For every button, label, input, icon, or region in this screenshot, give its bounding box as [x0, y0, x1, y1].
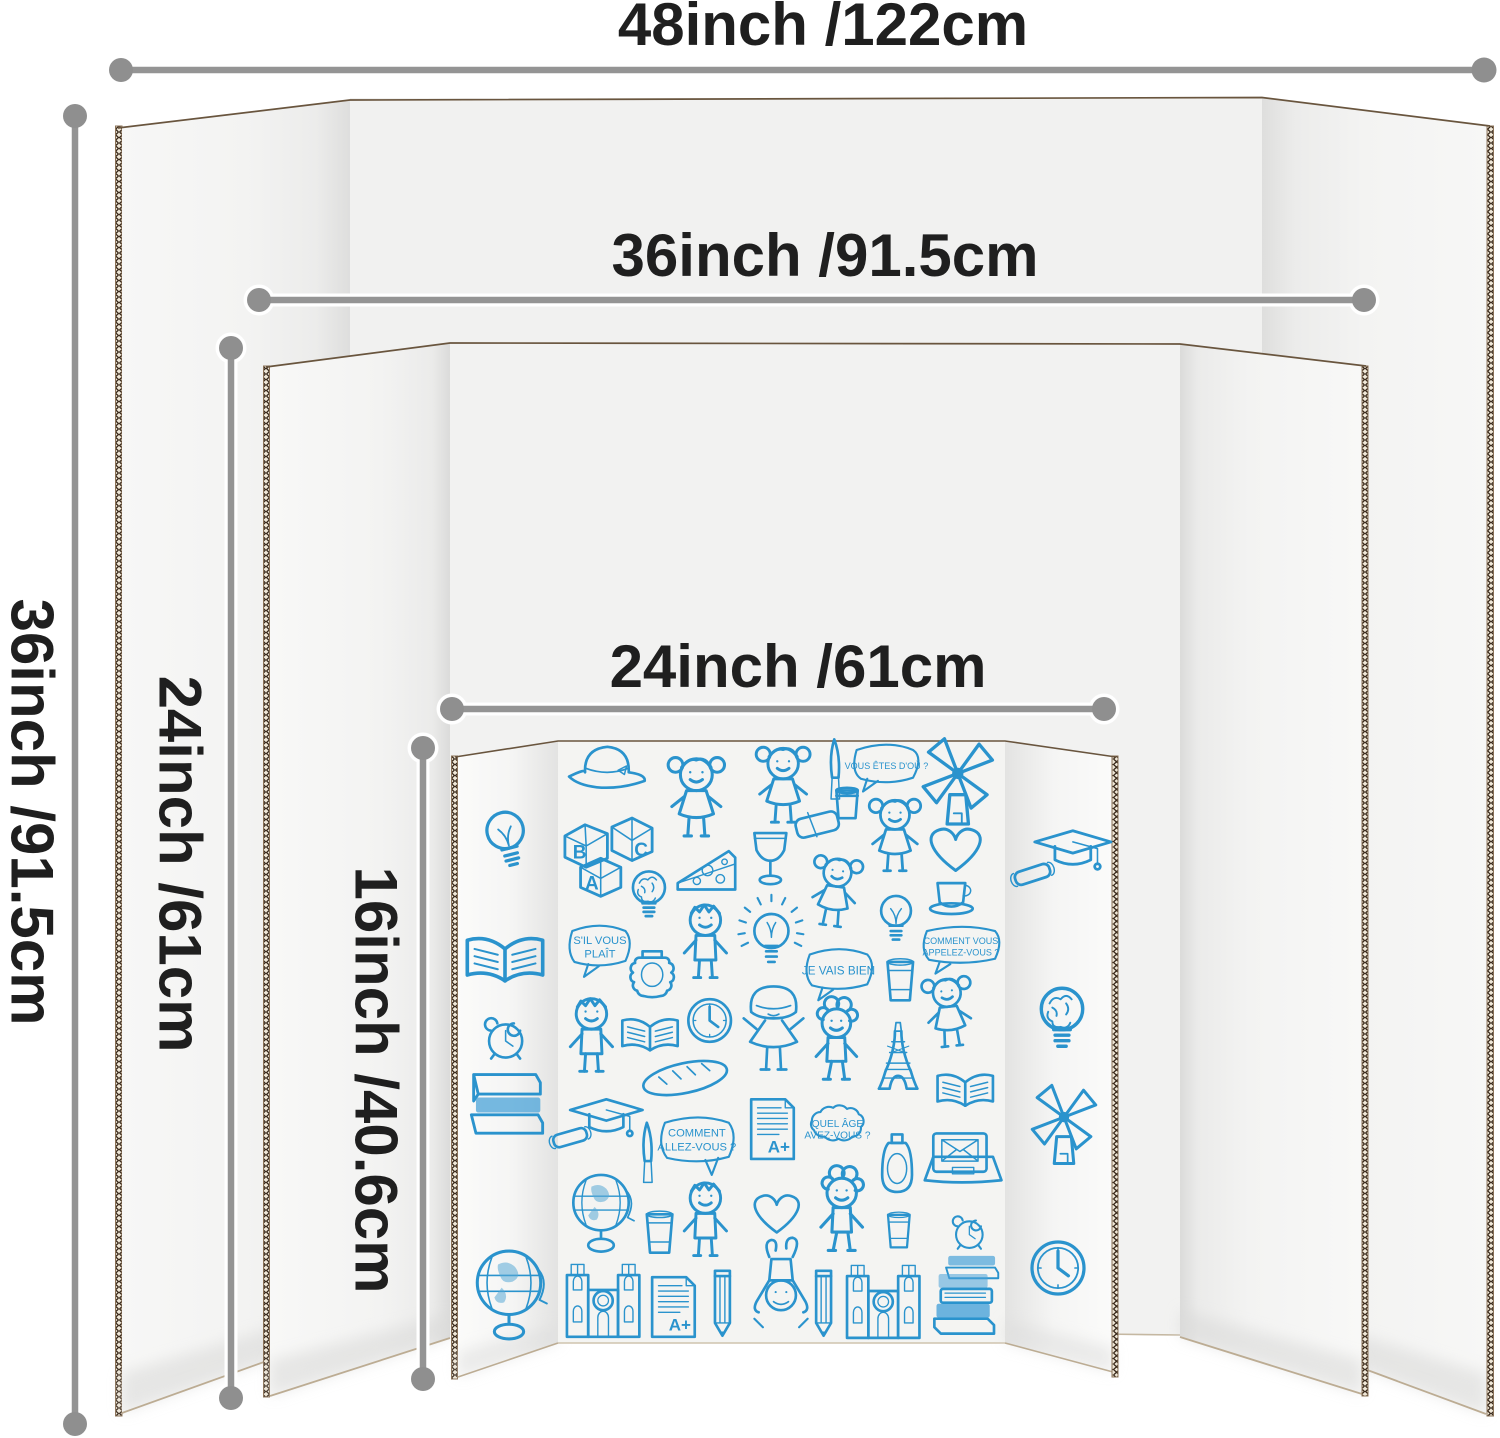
svg-text:COMMENT VOUS: COMMENT VOUS: [924, 936, 999, 946]
svg-text:COMMENT: COMMENT: [668, 1128, 726, 1140]
svg-text:36inch /91.5cm: 36inch /91.5cm: [0, 599, 66, 1026]
svg-text:AVEZ-VOUS ?: AVEZ-VOUS ?: [804, 1131, 870, 1142]
svg-text:QUEL ÂGE: QUEL ÂGE: [812, 1117, 864, 1130]
svg-text:48inch /122cm: 48inch /122cm: [618, 0, 1028, 58]
svg-text:JE VAIS BIEN: JE VAIS BIEN: [802, 965, 875, 978]
svg-text:16inch /40.6cm: 16inch /40.6cm: [343, 867, 410, 1294]
svg-text:PLAÎT: PLAÎT: [584, 948, 615, 961]
svg-text:APPELEZ-VOUS ?: APPELEZ-VOUS ?: [923, 948, 1000, 958]
svg-text:36inch /91.5cm: 36inch /91.5cm: [612, 222, 1039, 289]
svg-text:S'IL VOUS: S'IL VOUS: [573, 935, 626, 947]
svg-text:24inch /61cm: 24inch /61cm: [147, 676, 214, 1053]
svg-text:ALLEZ-VOUS ?: ALLEZ-VOUS ?: [657, 1141, 736, 1153]
svg-text:VOUS ÊTES D'OÙ ?: VOUS ÊTES D'OÙ ?: [845, 761, 929, 771]
svg-text:24inch /61cm: 24inch /61cm: [610, 633, 987, 700]
